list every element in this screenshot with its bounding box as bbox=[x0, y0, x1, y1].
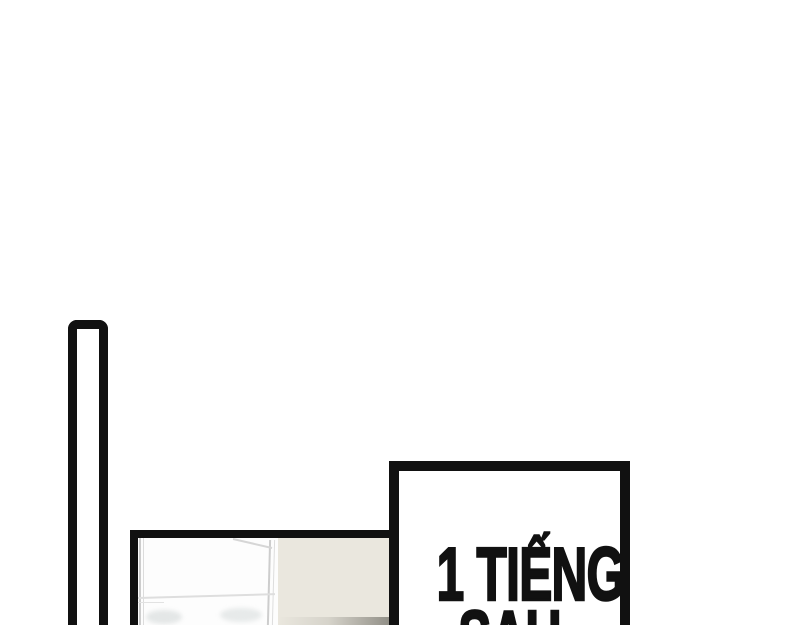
case-right-frame bbox=[267, 540, 275, 625]
comic-page: 1 TIẾNG SAU bbox=[0, 0, 800, 625]
caption-text: 1 TIẾNG SAU bbox=[437, 543, 583, 625]
wall-floor-shadow bbox=[278, 617, 390, 625]
panel-interior bbox=[138, 538, 390, 625]
display-case-panel bbox=[130, 530, 390, 625]
glass-display-case bbox=[138, 538, 278, 625]
caption-line-2: SAU bbox=[437, 606, 583, 625]
beige-wall bbox=[278, 538, 390, 625]
pole-shape bbox=[68, 320, 108, 625]
case-shelf-line bbox=[138, 593, 275, 599]
case-top-rail bbox=[233, 538, 272, 549]
case-reflection bbox=[146, 610, 182, 624]
case-shelf-edge bbox=[138, 602, 164, 603]
caption-box: 1 TIẾNG SAU bbox=[389, 461, 630, 625]
case-reflection bbox=[220, 608, 262, 622]
case-left-frame bbox=[139, 538, 144, 625]
